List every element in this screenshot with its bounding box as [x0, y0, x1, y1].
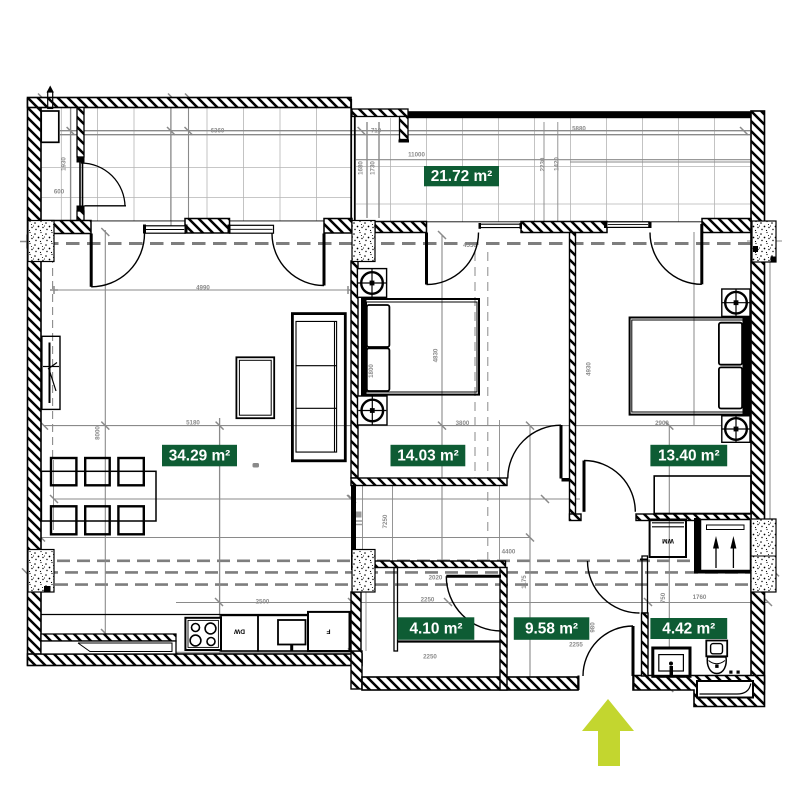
- svg-text:750: 750: [660, 592, 667, 603]
- svg-text:1930: 1930: [61, 157, 68, 171]
- svg-text:2900: 2900: [655, 420, 669, 427]
- svg-text:4400: 4400: [502, 549, 516, 556]
- svg-text:4830: 4830: [432, 348, 439, 362]
- svg-text:21.72 m²: 21.72 m²: [431, 168, 493, 185]
- svg-text:F: F: [326, 628, 330, 635]
- svg-text:4.10 m²: 4.10 m²: [409, 621, 462, 638]
- svg-text:1800: 1800: [368, 364, 375, 378]
- svg-text:3800: 3800: [456, 420, 470, 427]
- svg-text:710: 710: [371, 128, 382, 135]
- svg-text:WM: WM: [662, 537, 674, 544]
- svg-text:2250: 2250: [423, 654, 437, 661]
- svg-text:1420: 1420: [553, 157, 560, 171]
- svg-text:DW: DW: [233, 628, 245, 635]
- svg-text:1730: 1730: [370, 161, 377, 175]
- svg-text:4550: 4550: [463, 242, 477, 249]
- svg-text:6360: 6360: [211, 128, 225, 135]
- svg-text:980: 980: [590, 622, 597, 633]
- svg-text:1680: 1680: [358, 161, 365, 175]
- svg-text:2500: 2500: [256, 598, 270, 605]
- svg-text:1175: 1175: [521, 575, 528, 589]
- svg-text:1760: 1760: [693, 594, 707, 601]
- svg-text:9.58 m²: 9.58 m²: [525, 621, 578, 638]
- svg-text:4930: 4930: [586, 362, 593, 376]
- svg-text:14.03 m²: 14.03 m²: [397, 448, 459, 465]
- svg-text:7250: 7250: [382, 514, 389, 528]
- svg-text:2255: 2255: [569, 642, 583, 649]
- svg-text:2230: 2230: [540, 157, 547, 171]
- svg-text:4.42 m²: 4.42 m²: [662, 621, 715, 638]
- svg-text:13.40 m²: 13.40 m²: [658, 448, 720, 465]
- svg-text:5180: 5180: [186, 420, 200, 427]
- svg-text:2020: 2020: [429, 575, 443, 582]
- svg-text:4990: 4990: [196, 285, 210, 292]
- svg-text:5880: 5880: [572, 126, 586, 133]
- svg-text:8000: 8000: [95, 426, 102, 440]
- svg-text:11000: 11000: [408, 152, 425, 159]
- svg-text:2250: 2250: [421, 597, 435, 604]
- svg-text:600: 600: [54, 189, 65, 196]
- svg-text:34.29 m²: 34.29 m²: [169, 448, 231, 465]
